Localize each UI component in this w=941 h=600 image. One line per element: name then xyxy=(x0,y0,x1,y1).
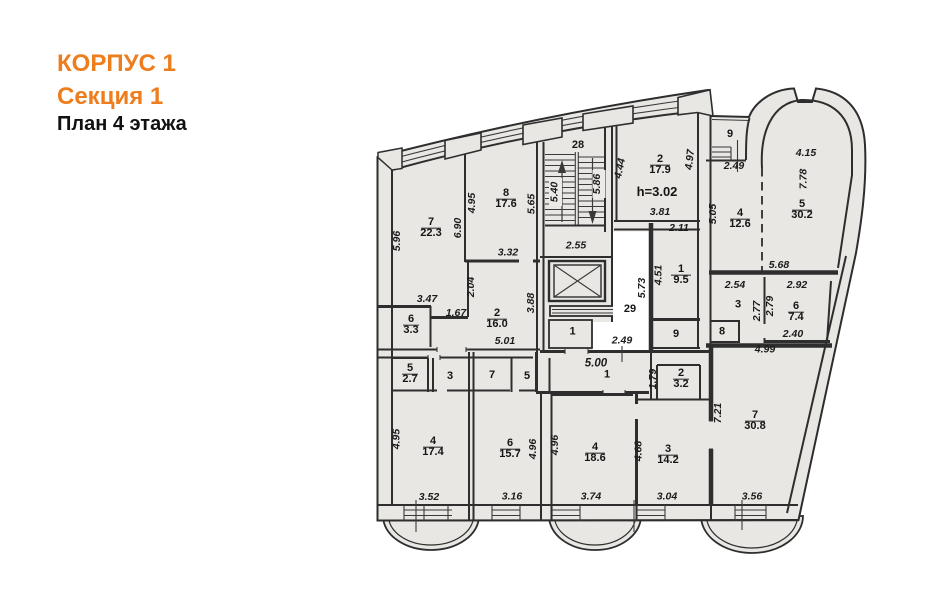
svg-text:2: 2 xyxy=(678,367,684,379)
svg-text:28: 28 xyxy=(572,139,584,151)
svg-text:8: 8 xyxy=(503,187,509,199)
svg-text:2.79: 2.79 xyxy=(764,296,776,318)
svg-text:4.68: 4.68 xyxy=(633,441,645,463)
svg-text:3.47: 3.47 xyxy=(417,293,439,305)
svg-text:4.97: 4.97 xyxy=(683,148,697,172)
svg-text:5: 5 xyxy=(407,362,413,374)
svg-text:9: 9 xyxy=(727,128,733,140)
svg-text:29: 29 xyxy=(624,303,636,315)
svg-text:1: 1 xyxy=(678,263,684,275)
svg-text:17.9: 17.9 xyxy=(649,164,670,176)
svg-text:3.74: 3.74 xyxy=(581,491,602,503)
svg-text:6: 6 xyxy=(507,437,513,449)
svg-text:4.95: 4.95 xyxy=(391,429,403,451)
svg-text:3.2: 3.2 xyxy=(673,378,688,390)
svg-text:5.86: 5.86 xyxy=(591,174,603,195)
svg-text:5.96: 5.96 xyxy=(391,231,403,252)
svg-text:3.56: 3.56 xyxy=(742,491,763,503)
svg-text:3.88: 3.88 xyxy=(525,293,537,314)
svg-text:4.96: 4.96 xyxy=(527,439,539,461)
svg-text:2: 2 xyxy=(494,307,500,319)
svg-text:18.6: 18.6 xyxy=(584,452,605,464)
svg-text:7.78: 7.78 xyxy=(798,169,810,190)
svg-text:2.54: 2.54 xyxy=(724,279,746,291)
svg-text:6: 6 xyxy=(793,300,799,312)
svg-text:7.4: 7.4 xyxy=(788,311,804,323)
svg-text:3: 3 xyxy=(735,299,741,311)
svg-text:3.52: 3.52 xyxy=(419,491,440,503)
svg-text:3.32: 3.32 xyxy=(498,247,519,259)
svg-text:КОРПУС 1: КОРПУС 1 xyxy=(57,50,176,77)
svg-text:16.0: 16.0 xyxy=(486,318,507,330)
svg-text:7: 7 xyxy=(428,216,434,228)
svg-text:14.2: 14.2 xyxy=(657,454,678,466)
svg-text:30.2: 30.2 xyxy=(791,209,812,221)
svg-text:7: 7 xyxy=(489,369,495,381)
svg-text:План 4 этажа: План 4 этажа xyxy=(57,113,188,135)
svg-text:5.65: 5.65 xyxy=(526,194,538,215)
svg-text:5.68: 5.68 xyxy=(769,259,790,271)
svg-text:Секция 1: Секция 1 xyxy=(57,83,163,110)
svg-text:1.67: 1.67 xyxy=(446,307,468,319)
svg-text:5.40: 5.40 xyxy=(549,182,561,203)
svg-text:7: 7 xyxy=(752,409,758,421)
svg-text:6: 6 xyxy=(408,313,414,325)
svg-text:4: 4 xyxy=(592,441,599,453)
svg-text:5: 5 xyxy=(524,370,530,382)
svg-text:4.51: 4.51 xyxy=(653,265,665,287)
svg-text:4.96: 4.96 xyxy=(549,435,561,457)
svg-text:4: 4 xyxy=(430,435,437,447)
svg-text:4.95: 4.95 xyxy=(466,193,478,215)
svg-text:12.6: 12.6 xyxy=(729,218,750,230)
svg-text:17.6: 17.6 xyxy=(495,198,516,210)
svg-text:4: 4 xyxy=(737,207,744,219)
svg-text:3.16: 3.16 xyxy=(502,491,523,503)
svg-text:5: 5 xyxy=(799,198,805,210)
svg-text:9.5: 9.5 xyxy=(673,274,688,286)
svg-text:2.49: 2.49 xyxy=(611,335,633,347)
svg-text:9: 9 xyxy=(673,328,679,340)
svg-text:6.90: 6.90 xyxy=(452,218,464,239)
svg-text:15.7: 15.7 xyxy=(499,448,520,460)
svg-text:7.21: 7.21 xyxy=(712,403,724,424)
svg-text:2.49: 2.49 xyxy=(723,160,745,172)
svg-text:22.3: 22.3 xyxy=(420,227,441,239)
svg-text:5.00: 5.00 xyxy=(585,358,608,370)
svg-text:1: 1 xyxy=(569,326,575,338)
svg-text:17.4: 17.4 xyxy=(422,446,444,458)
svg-text:30.8: 30.8 xyxy=(744,420,765,432)
svg-text:3.81: 3.81 xyxy=(650,206,671,218)
svg-text:1.79: 1.79 xyxy=(647,369,659,390)
svg-text:5.73: 5.73 xyxy=(636,278,648,299)
svg-text:2.77: 2.77 xyxy=(751,300,763,323)
svg-text:4.15: 4.15 xyxy=(795,147,817,159)
svg-text:2.92: 2.92 xyxy=(786,279,808,291)
svg-text:2.55: 2.55 xyxy=(565,240,587,252)
svg-text:5.01: 5.01 xyxy=(495,335,516,347)
svg-text:3: 3 xyxy=(447,370,453,382)
svg-text:5.05: 5.05 xyxy=(707,204,719,225)
svg-text:1: 1 xyxy=(604,369,610,381)
svg-text:3.04: 3.04 xyxy=(657,491,678,503)
svg-text:3.3: 3.3 xyxy=(403,324,418,336)
svg-text:8: 8 xyxy=(719,326,725,338)
svg-text:2.7: 2.7 xyxy=(402,373,417,385)
svg-text:2: 2 xyxy=(657,153,663,165)
svg-text:4.99: 4.99 xyxy=(754,344,776,356)
svg-text:2.40: 2.40 xyxy=(782,328,804,340)
svg-text:2.11: 2.11 xyxy=(668,222,689,234)
svg-text:3: 3 xyxy=(665,443,671,455)
svg-text:h=3.02: h=3.02 xyxy=(637,184,678,199)
svg-text:2.04: 2.04 xyxy=(465,277,477,299)
